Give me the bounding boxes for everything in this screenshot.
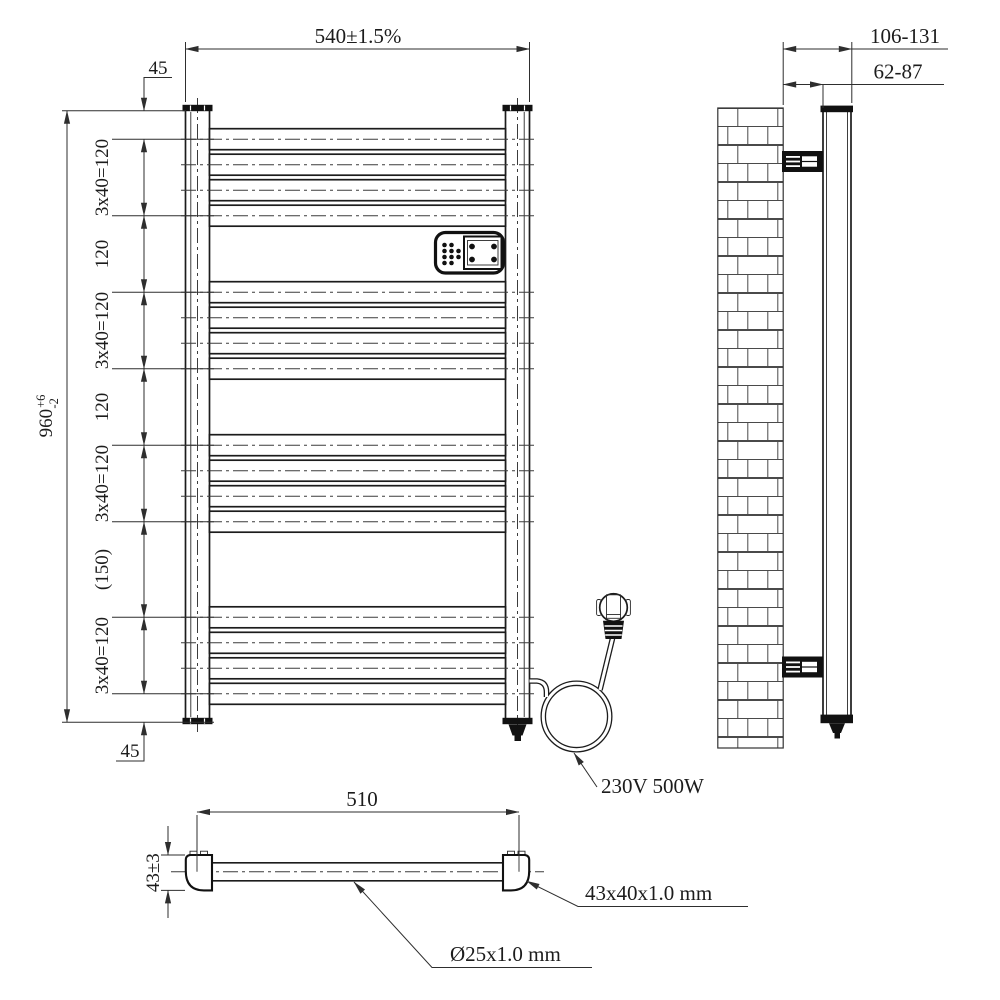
mounting-bracket-top <box>782 151 823 172</box>
power-rating-label: 230V 500W <box>601 774 704 798</box>
profile-spec-callout: 43x40x1.0 mm <box>527 881 749 907</box>
dim-overall-height-label: 960+6-2 <box>34 395 61 438</box>
side-element-stem <box>829 723 845 738</box>
dim-profile-height-label: 43±3 <box>143 853 164 892</box>
mounting-bracket-bottom <box>782 657 823 678</box>
dim-bar-group-label-1: 3x40=120 <box>92 139 113 216</box>
dim-bar-group-label-3: 3x40=120 <box>92 445 113 522</box>
mounting-plate <box>464 237 502 270</box>
power-cord-assembly: 230V 500W <box>530 594 705 798</box>
dim-bottom-offset-label: 45 <box>121 741 140 762</box>
side-view: 106-131 62-87 <box>718 24 948 748</box>
side-profile <box>821 106 854 739</box>
bottom-right-cap <box>503 851 529 890</box>
towel-rail-drawing: 540±1.5% 960+6-2 45 <box>0 0 1000 1000</box>
dim-overall-width-label: 540±1.5% <box>315 24 402 48</box>
bottom-dimensions: 510 43±3 43x40x1.0 mm Ø25x1.0 mm <box>143 787 748 968</box>
power-cable <box>530 639 613 750</box>
left-rail <box>186 98 210 732</box>
dim-center-gap-label: (150) <box>92 549 113 590</box>
tube-spec-label: Ø25x1.0 mm <box>450 942 561 966</box>
dim-gap-label-2: 120 <box>92 393 113 422</box>
tube-spec-callout: Ø25x1.0 mm <box>354 882 592 968</box>
dim-gap-label-1: 120 <box>92 240 113 269</box>
technical-drawing-page: 540±1.5% 960+6-2 45 <box>0 0 1000 1000</box>
dim-wall-to-front-label: 106-131 <box>870 24 940 48</box>
towel-bars <box>181 129 535 705</box>
profile-spec-label: 43x40x1.0 mm <box>585 881 712 905</box>
dim-wall-to-back-label: 62-87 <box>874 60 923 84</box>
dim-top-offset-label: 45 <box>149 58 168 79</box>
control-unit <box>436 233 504 274</box>
dim-bar-group-label-4: 3x40=120 <box>92 617 113 694</box>
wall-hatch <box>718 108 783 748</box>
element-stem <box>509 724 527 741</box>
bottom-tube <box>171 863 544 881</box>
bottom-left-cap <box>186 851 212 890</box>
dim-bar-group-label-2: 3x40=120 <box>92 292 113 369</box>
dim-rail-centers-label: 510 <box>346 787 378 811</box>
front-view: 540±1.5% 960+6-2 45 <box>34 24 535 762</box>
power-rating-callout: 230V 500W <box>574 753 704 798</box>
side-dimensions: 106-131 62-87 <box>783 24 948 108</box>
bottom-view: 510 43±3 43x40x1.0 mm Ø25x1.0 mm <box>143 787 748 968</box>
right-rail <box>506 98 530 732</box>
power-plug <box>597 594 631 639</box>
